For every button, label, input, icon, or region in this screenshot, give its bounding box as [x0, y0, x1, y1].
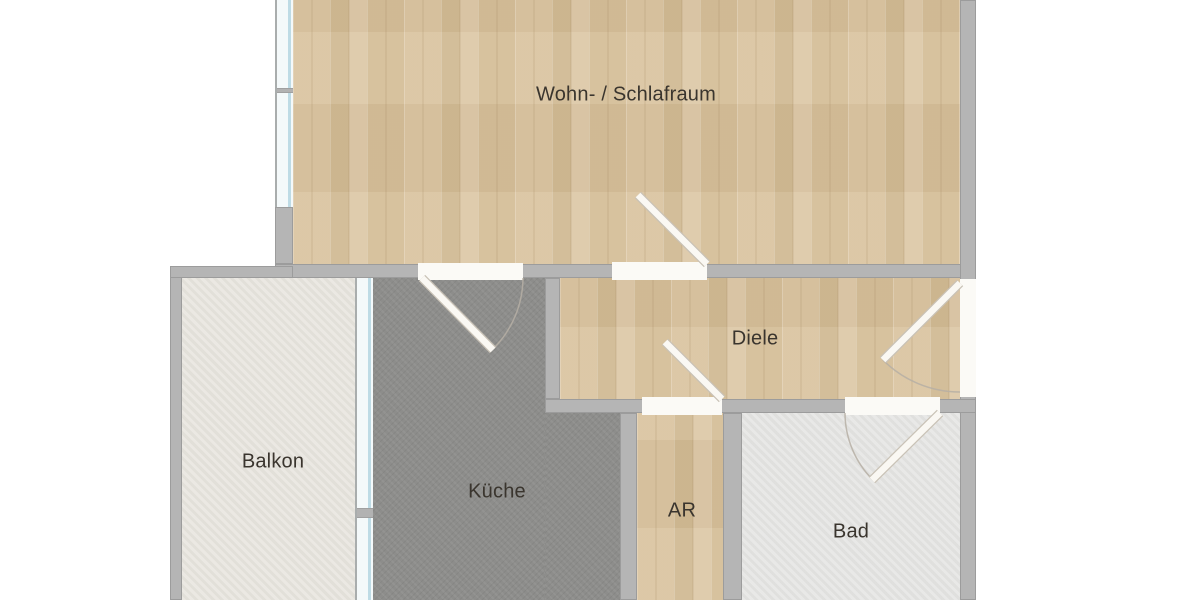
wall-kueche-ar-wall: [620, 413, 637, 600]
room-balkon-floor: [182, 278, 355, 600]
floor-plan-canvas: Wohn- / SchlafraumDieleKücheARBadBalkon: [0, 0, 1200, 600]
room-bad-floor: [742, 413, 960, 600]
wohnraum-door-opening: [612, 262, 707, 280]
ar-door-opening: [642, 397, 722, 415]
wohnraum-west-window-mullion-0: [277, 88, 293, 93]
kueche-door-opening: [418, 263, 523, 280]
room-wohnraum-floor: [293, 0, 960, 264]
wall-kueche-diele-wall: [545, 278, 560, 399]
balkon-kueche-window: [355, 278, 373, 600]
balkon-kueche-window-mullion-0: [357, 508, 373, 518]
wall-west-wall-lower: [275, 207, 293, 264]
room-kueche-ext-floor: [545, 413, 620, 600]
room-kueche-floor: [373, 278, 545, 600]
room-label-bad: Bad: [833, 521, 869, 544]
bad-door-opening: [845, 397, 940, 415]
wall-balkon-north-wall: [170, 266, 293, 278]
room-label-diele: Diele: [732, 328, 779, 351]
wohnraum-west-window-glass: [288, 0, 291, 207]
room-label-balkon: Balkon: [242, 451, 304, 474]
balkon-kueche-window-glass: [368, 278, 371, 600]
entrance-door-opening: [960, 279, 976, 397]
room-label-kueche: Küche: [468, 481, 526, 504]
room-label-ar: AR: [668, 500, 696, 523]
wall-ar-bad-wall: [723, 413, 742, 600]
room-label-wohnraum: Wohn- / Schlafraum: [536, 84, 716, 107]
wohnraum-west-window: [275, 0, 293, 207]
wall-balkon-west-wall: [170, 266, 182, 600]
